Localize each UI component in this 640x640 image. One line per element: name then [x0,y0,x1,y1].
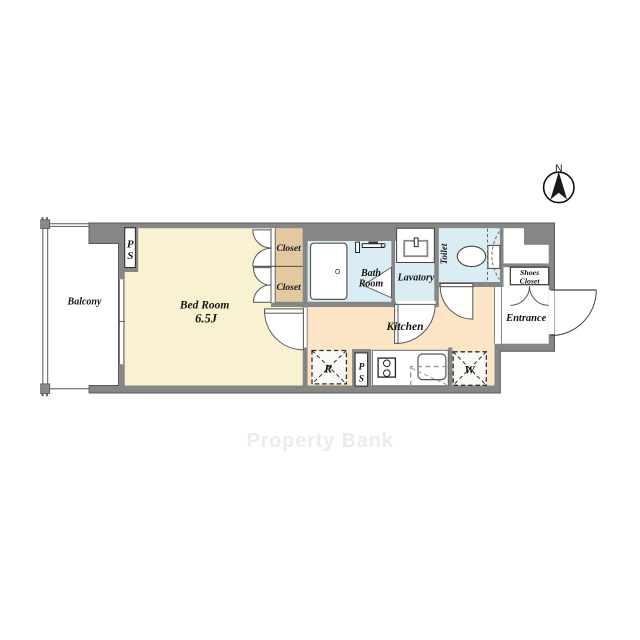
svg-text:Closet: Closet [276,244,301,254]
svg-text:Room: Room [358,278,384,289]
svg-text:W: W [464,363,476,377]
svg-text:Bed Room: Bed Room [179,300,230,312]
svg-text:Property Bank: Property Bank [246,430,393,452]
svg-text:Kitchen: Kitchen [385,321,423,333]
svg-text:R: R [323,361,332,375]
svg-text:Toilet: Toilet [439,243,449,264]
svg-text:S: S [127,250,133,262]
svg-text:Closet: Closet [520,277,541,286]
svg-text:S: S [359,375,364,385]
svg-text:Closet: Closet [276,283,301,293]
svg-text:P: P [127,239,134,251]
svg-text:6.5J: 6.5J [195,311,218,325]
svg-text:Entrance: Entrance [505,313,547,324]
svg-text:Balcony: Balcony [67,297,102,308]
svg-text:P: P [358,363,364,373]
svg-text:Lavatory: Lavatory [397,273,435,284]
svg-text:Bath: Bath [360,268,381,279]
svg-text:N: N [555,162,563,174]
